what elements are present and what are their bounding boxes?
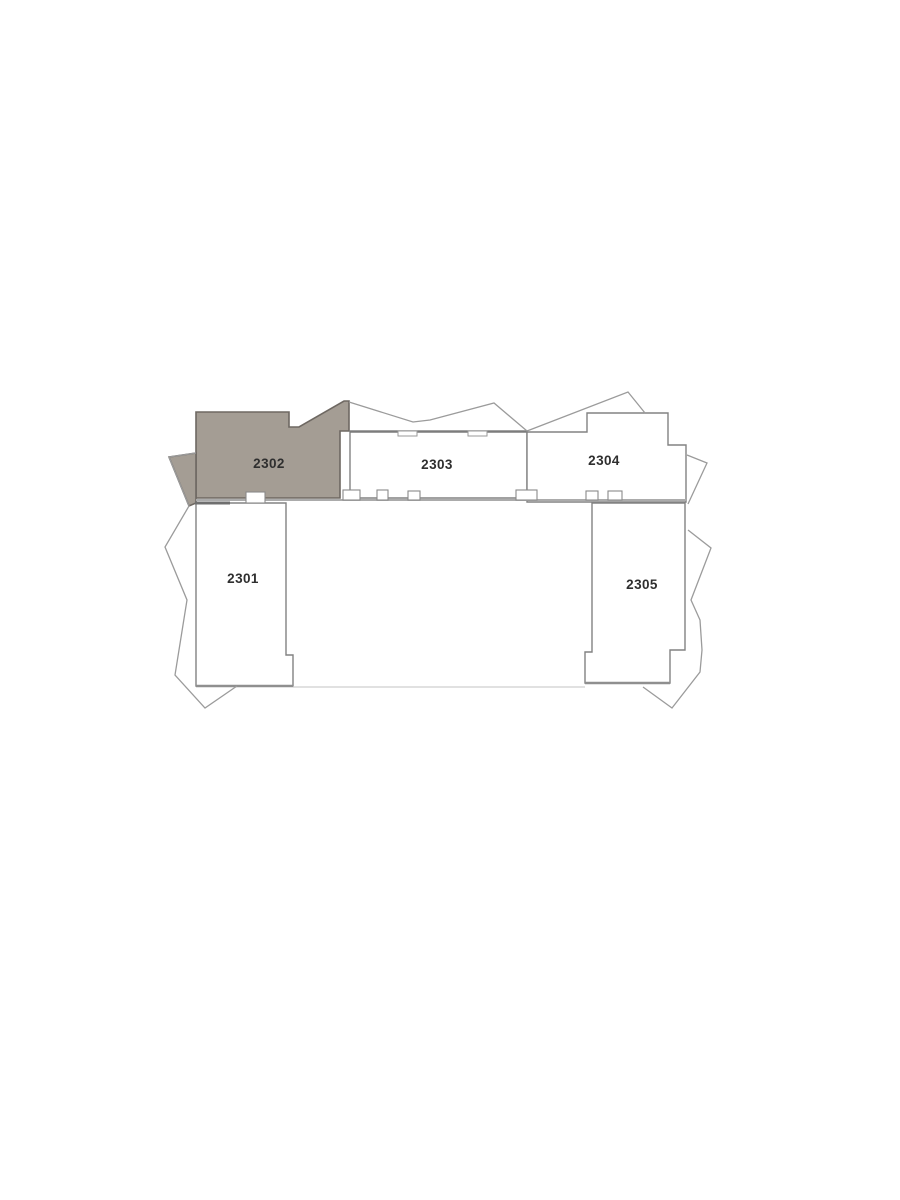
balcony-right-2304 xyxy=(687,455,707,504)
door-opening xyxy=(608,491,622,500)
unit-label-2305[interactable]: 2305 xyxy=(626,577,658,592)
door-opening xyxy=(343,490,360,500)
door-opening xyxy=(516,490,537,500)
unit-label-2302[interactable]: 2302 xyxy=(253,456,285,471)
door-opening xyxy=(377,490,388,500)
balcony-top-2303 xyxy=(349,402,527,431)
unit-2305[interactable] xyxy=(585,503,685,683)
unit-label-2304[interactable]: 2304 xyxy=(588,453,620,468)
unit-label-2301[interactable]: 2301 xyxy=(227,571,259,586)
unit-2302-wedge[interactable] xyxy=(169,453,196,506)
window-notch xyxy=(398,431,417,436)
floor-plan-svg: 2301 2302 2303 2304 2305 xyxy=(0,0,900,1200)
unit-label-2303[interactable]: 2303 xyxy=(421,457,453,472)
door-opening xyxy=(408,491,420,500)
unit-2301[interactable] xyxy=(195,503,293,686)
door-opening xyxy=(586,491,598,500)
unit-2305-shape[interactable] xyxy=(585,503,685,683)
unit-2301-shape[interactable] xyxy=(196,503,293,686)
floor-plan-page: 2301 2302 2303 2304 2305 xyxy=(0,0,900,1200)
unit-2302-shape[interactable] xyxy=(196,401,349,498)
door-opening xyxy=(246,492,265,503)
window-notch xyxy=(468,431,487,436)
